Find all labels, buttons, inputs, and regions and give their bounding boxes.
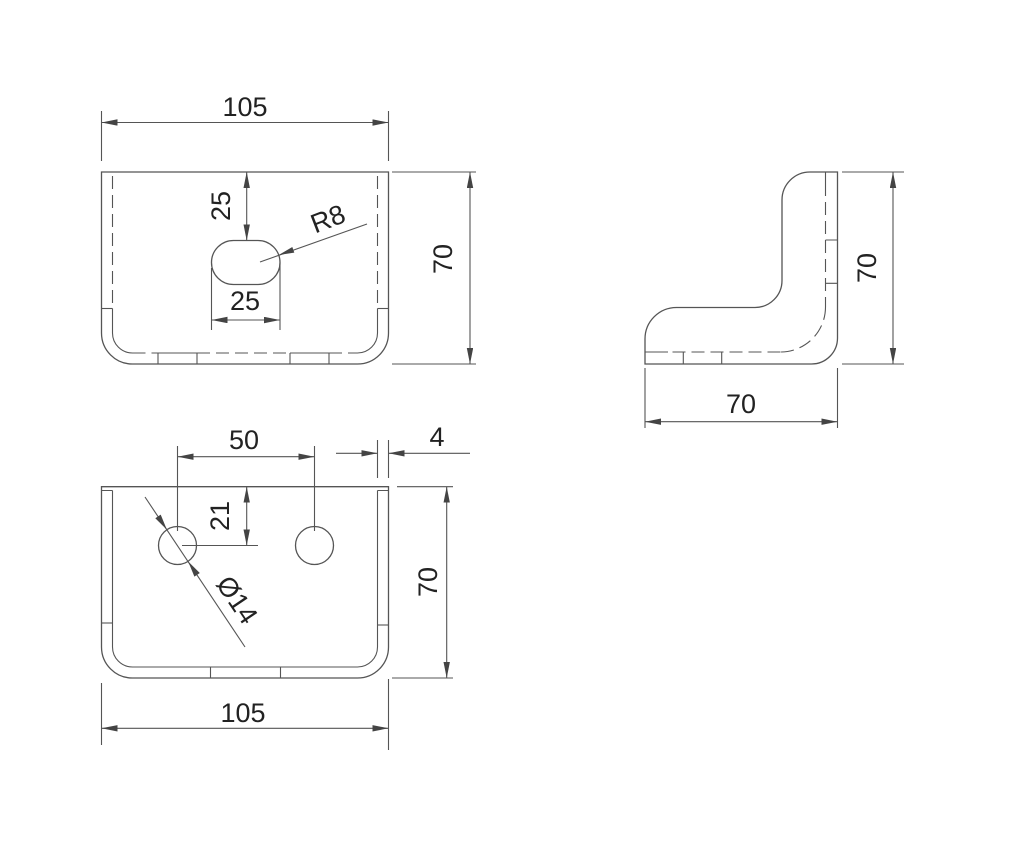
dim-slot-length-label: 25: [230, 286, 260, 316]
dim-front-height: 70: [392, 487, 453, 678]
top-view-inner-left: [113, 309, 133, 354]
front-view-outline: [102, 487, 389, 678]
dim-slot-radius: R8: [260, 199, 367, 262]
dim-top-depth: 70: [392, 172, 476, 364]
dim-side-depth-label: 70: [726, 389, 756, 419]
dim-hole-spacing-label: 50: [229, 425, 259, 455]
leader-arrow-icon: [279, 247, 295, 255]
dim-hole-diameter-label: Ø14: [210, 570, 263, 629]
hole-right: [296, 527, 334, 565]
dim-hole-offset-label: 21: [205, 501, 235, 531]
dim-slot-offset: 25: [206, 172, 247, 241]
dim-thickness: 4: [336, 422, 470, 478]
front-view: 50 4 21 70 105: [102, 422, 471, 750]
top-view: 105 70 25 25 R8: [102, 92, 477, 364]
dim-top-width: 105: [102, 92, 389, 161]
dim-front-height-label: 70: [413, 567, 443, 597]
side-view-outline: [645, 172, 838, 364]
leader-arrow-icon: [155, 515, 167, 530]
dim-slot-radius-label: R8: [307, 199, 350, 239]
side-view-hole-ticks: [683, 352, 721, 364]
top-view-bend-seg-1: [158, 353, 197, 364]
drawing-svg: 105 70 25 25 R8: [0, 0, 1024, 853]
drawing-sheet: 105 70 25 25 R8: [0, 0, 1024, 853]
top-view-inner-right: [358, 309, 378, 354]
slot-hole: [212, 241, 281, 285]
dim-side-height-label: 70: [852, 253, 882, 283]
leader-arrow-icon: [188, 562, 200, 577]
extension-line: [378, 440, 389, 478]
dim-front-width: 105: [102, 679, 389, 750]
side-view-hidden-bend: [781, 307, 826, 352]
dim-top-depth-label: 70: [428, 244, 458, 274]
dim-side-depth: 70: [645, 368, 838, 428]
top-view-outline: [102, 172, 389, 364]
side-view: 70 70: [645, 172, 904, 428]
top-view-bend-seg-2: [290, 353, 329, 364]
dim-thickness-label: 4: [429, 422, 444, 452]
side-view-slot-ticks: [826, 240, 838, 283]
dim-hole-offset: 21: [182, 487, 258, 546]
extension-line: [178, 446, 315, 531]
front-view-inner-right: [358, 491, 378, 668]
front-view-inner-bottom: [133, 667, 358, 678]
dim-front-width-label: 105: [220, 698, 265, 728]
dim-side-height: 70: [842, 172, 904, 364]
front-view-inner-left: [113, 491, 133, 668]
dim-slot-length: 25: [212, 263, 281, 331]
dim-top-width-label: 105: [222, 92, 267, 122]
dim-hole-spacing: 50: [178, 425, 315, 531]
dim-slot-offset-label: 25: [206, 191, 236, 221]
